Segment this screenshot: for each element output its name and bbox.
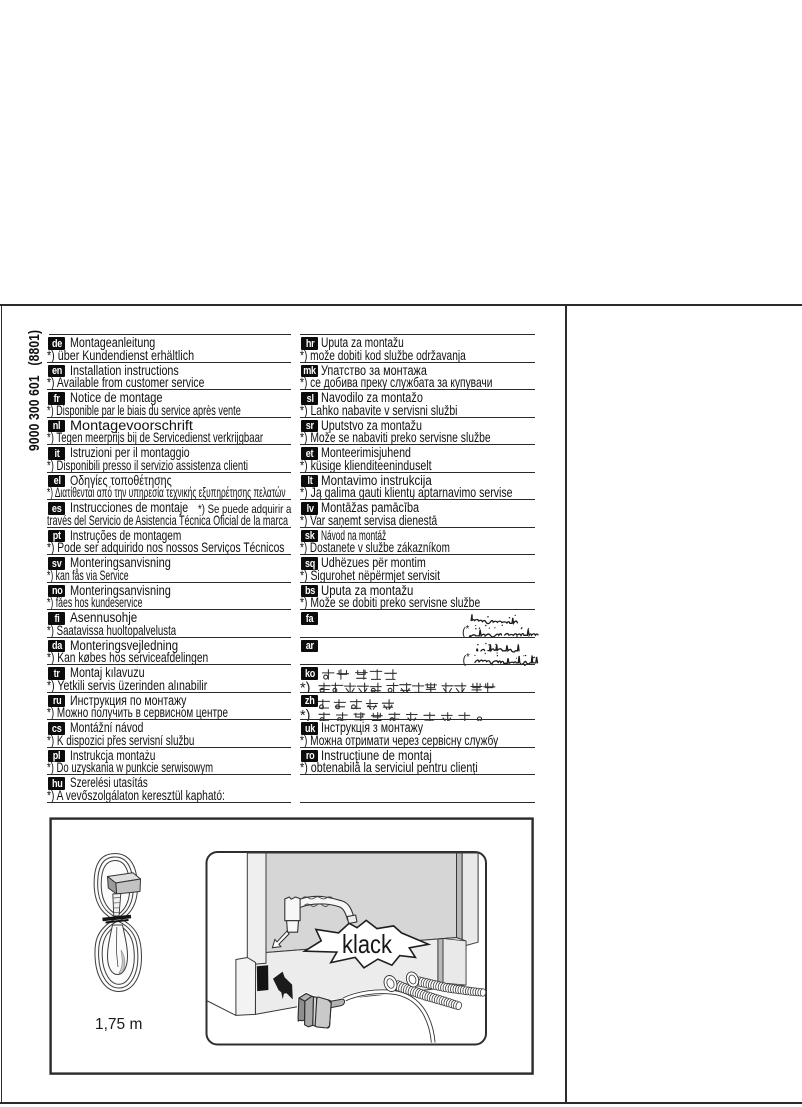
svg-text:1,75 m: 1,75 m xyxy=(95,1016,142,1033)
svg-text:klack: klack xyxy=(342,929,393,959)
